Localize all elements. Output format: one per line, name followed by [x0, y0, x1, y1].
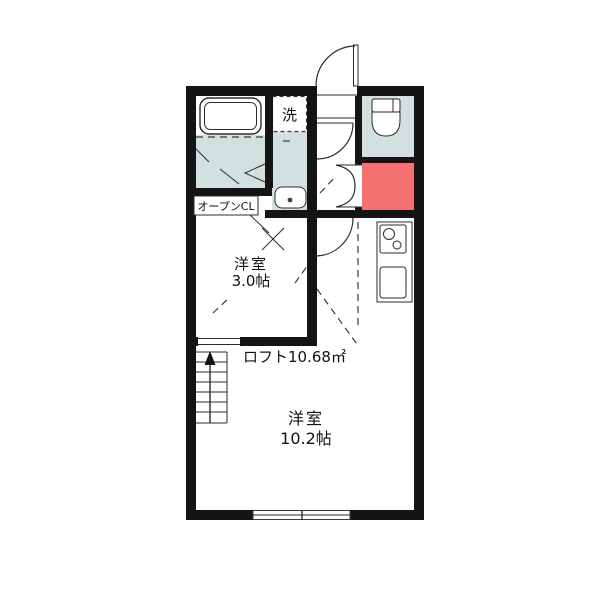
- wall-hall-bottom: [265, 210, 362, 218]
- small-room-name-label: 洋室: [234, 255, 268, 273]
- stove-burner-large: [384, 229, 395, 240]
- wall-small-room-bottom-right: [240, 337, 317, 346]
- washbasin: [275, 187, 306, 208]
- loft-area-label: ロフト10.68㎡: [243, 348, 346, 366]
- window-icon: [253, 511, 350, 520]
- entrance-door-leaf: [354, 45, 359, 86]
- main-room-name-label: 洋室: [288, 409, 324, 428]
- stove-burner-small: [393, 241, 401, 249]
- small-room-size-label: 3.0帖: [232, 272, 271, 290]
- laundry-area: 洗: [273, 97, 307, 132]
- wall-small-room-bottom-left: [186, 337, 198, 346]
- toilet-bowl-icon: [372, 112, 400, 136]
- wall-right: [414, 86, 424, 520]
- red-marked-space: [362, 163, 414, 210]
- bathroom-floor: [196, 135, 265, 188]
- floor-plan: 洗: [0, 0, 600, 600]
- open-closet-label: オープンCL: [197, 200, 255, 213]
- wall-below-bathroom: [186, 188, 272, 196]
- wall-toilet-red: [362, 157, 414, 163]
- wall-below-red: [362, 210, 414, 218]
- laundry-label: 洗: [282, 106, 297, 124]
- kitchen: [377, 222, 412, 302]
- main-room-size-label: 10.2帖: [280, 429, 332, 448]
- toilet-tank-icon: [372, 99, 400, 112]
- toilet-room: [372, 99, 400, 136]
- washbasin-drain-dot: [288, 198, 293, 203]
- kitchen-sink-icon: [380, 267, 406, 298]
- wall-top-left: [186, 86, 317, 96]
- washbasin-icon: [275, 187, 306, 208]
- wall-left: [186, 86, 196, 520]
- wall-hall-left: [307, 96, 317, 346]
- wall-hall-toilet-lower: [355, 207, 362, 218]
- wall-top-right: [357, 86, 424, 96]
- wall-hall-toilet-upper: [355, 96, 362, 165]
- wall-bath-washroom: [265, 96, 273, 188]
- bathtub-inner-line: [205, 103, 257, 130]
- stove-icon: [380, 225, 406, 253]
